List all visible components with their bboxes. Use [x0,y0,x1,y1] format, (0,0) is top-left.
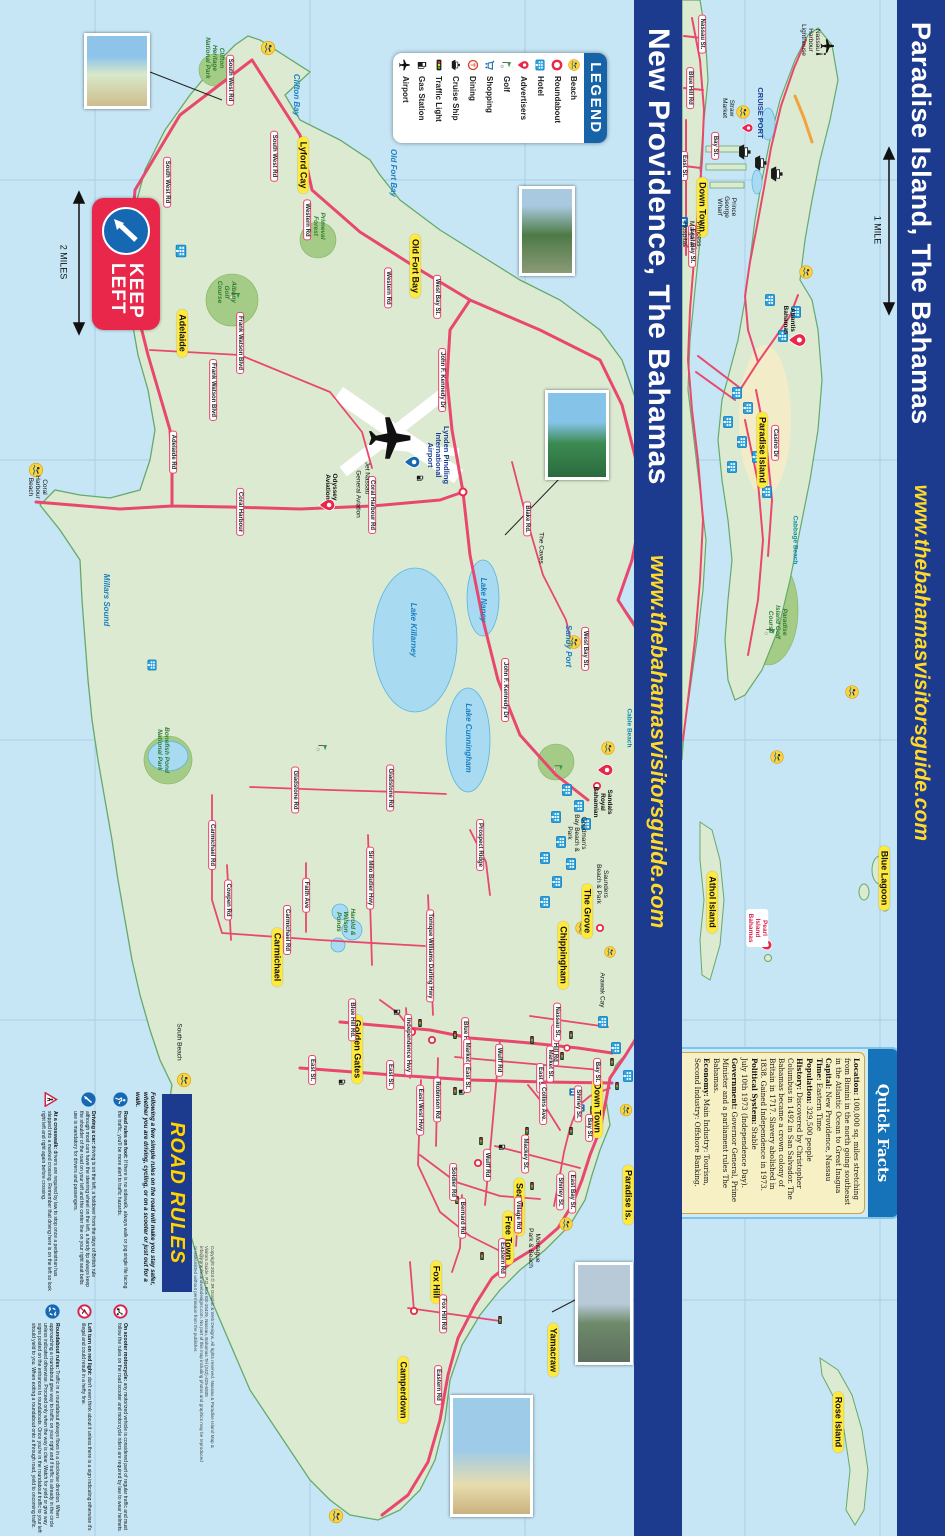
road-label: Sir Milo Butler Hwy [366,847,374,910]
roundabout2-icon [45,1304,60,1319]
quick-fact-text: Stable [750,1127,759,1150]
quick-fact: Time: Eastern Time [814,1058,823,1208]
road-label: John F. Kennedy Dr [501,658,509,722]
road-label: Shirley St. [574,1085,582,1122]
legend-item-label: Airport [401,76,410,103]
road-label: Western Rd [303,199,311,240]
hotel-icon [736,436,749,449]
beach-icon [261,41,276,56]
park-label: Harold & Wilson Ponds [335,902,355,942]
beach-icon [559,1217,573,1231]
quick-facts-panel: Quick Facts Location: 100,000 sq. miles … [660,1047,900,1219]
side-title-banner: Paradise Island, The Bahamas www.thebaha… [897,0,945,1536]
legend-item-gas-station: Gas Station [416,59,428,137]
poi-label: Straw Market [720,94,734,122]
road-label: Tonique Williams Darling Hwy [426,909,434,1002]
legend-item-roundabout: Roundabout [551,59,563,137]
cruise-icon [450,59,462,71]
road-label: Prospect Ridge [476,819,484,871]
legend-items: BeachRoundaboutHotelAdvertisersGolfShopp… [393,53,584,143]
copyright-notice: Copyright 2024 © JR Graphic & Web Design… [191,1246,215,1464]
quick-fact-text: July 10th 1973 (Independence Day). [740,1058,749,1188]
poi-label: Cable Beach [625,708,632,747]
poi-label: Atlantis Bahamas [781,304,795,336]
road-label: Frank Watson Blvd [236,312,244,374]
legend-item-label: Beach [570,76,579,100]
keep-left-sign: KEEP LEFT [92,198,160,330]
gas-icon [498,1143,507,1152]
hotel-icon [622,1070,635,1083]
road-label: Soldier Rd [449,1163,457,1201]
road-label: Blue Hill Rd [686,67,694,109]
beach-icon [736,105,750,119]
legend-item-traffic-light: Traffic Light [433,59,445,137]
roundabout-icon [596,924,605,933]
water-label: Lake Nancy [479,578,487,622]
water-label: Millars Sound [102,574,110,626]
beach-icon [568,59,580,71]
road-label: Gladstone Rd [386,764,394,811]
side-page-title: Paradise Island, The Bahamas [906,22,937,425]
road-rule: Road rules on foot: If there is no sidew… [113,1092,128,1292]
quick-fact-text: Eastern Time [815,1083,824,1131]
beach-icon [604,946,616,958]
place-label: Yamacraw [547,1323,558,1377]
poi-label: South Beach [175,1023,182,1060]
quick-fact-label: Location: [852,1058,861,1095]
pedestrian-icon [113,1092,128,1107]
poi-label: Pearl Island Bahamas [746,909,768,947]
traffic-icon [567,1127,576,1136]
park-label: Paradise Island Golf Course [767,599,787,645]
road-label: East Bay St. [568,1171,576,1214]
road-rule: At a crosswalk: drivers are required by … [40,1092,58,1292]
quick-fact-label: Political System: [750,1058,759,1124]
road-label: South West Rd [163,157,171,208]
road-rule-text: Roundabout rules: Traffic in a roundabou… [30,1323,60,1536]
quick-facts-body: Location: 100,000 sq. miles stretching f… [665,1052,865,1214]
place-label: Chippingham [557,921,568,989]
roundabout-icon [551,59,563,71]
road-label: Wulff Rd [495,1044,503,1077]
legend-item-label: Dining [468,76,477,101]
golf-icon [553,763,564,774]
traffic-icon [528,1182,537,1191]
road-label: Western Rd [384,267,392,308]
quick-fact-text: New Providence, Nassau [824,1091,833,1181]
road-rule-heading: Driving a car: [90,1111,96,1144]
photo-inset-beach [84,33,150,109]
traffic-icon [613,1082,622,1091]
beach-icon [845,685,859,699]
poi-label: Sandals Royal Bahamian [592,782,612,822]
road-label: Frank Watson Blvd [209,359,217,421]
legend-item-golf: Golf [500,59,512,137]
road-label: Village Rd [514,1197,522,1234]
road-label: East St. [463,1063,471,1093]
poi-label: Arawak Cay [598,972,605,1007]
road-label: Adelaide Rd [169,431,177,474]
legend-item-advertisers: Advertisers [517,59,529,137]
quick-fact: Political System: Stable [749,1058,758,1208]
beach-icon [329,1509,344,1524]
quick-fact-label: Time: [815,1058,824,1081]
poi-label: Coral Harbour Beach [27,469,47,505]
road-label: John F. Kennedy Dr [438,348,446,412]
road-label: Eastern Rd [434,1365,442,1405]
poi-label: The Caves [537,532,544,563]
legend-item-label: Traffic Light [434,76,443,122]
hotel-icon [534,59,546,71]
advertiser-icon [741,122,753,134]
quick-fact: Location: 100,000 sq. miles stretching f… [833,1058,860,1208]
road-label: East St. [308,1055,316,1085]
scale-label: 2 MILES [58,245,67,280]
place-label: Rose Island [832,1392,843,1453]
road-rule: On scooter motorcycle: any motorized veh… [113,1304,128,1532]
quick-fact-label: History: [795,1058,804,1090]
legend-item-label: Advertisers [519,76,528,120]
road-label: Carmichael Rd [283,905,291,955]
keep-left-line1: KEEP [126,263,144,319]
quick-fact: July 10th 1973 (Independence Day). [739,1058,748,1208]
roundabout-icon [474,1159,483,1168]
road-label: Market St. [546,1046,554,1083]
road-label: Cowpen Rd [224,880,232,921]
keep-left-line2: LEFT [108,263,126,319]
place-label: Lyford Cay [297,137,308,194]
poi-label: Prince George Wharf [716,189,736,225]
hotel-icon [764,294,777,307]
noleft-icon [77,1304,92,1319]
poi-label: Saunders Beach & Park [594,864,608,904]
airport-icon [369,415,415,461]
road-rule-text: At a crosswalk: drivers are required by … [40,1111,58,1292]
gas-icon [416,474,425,483]
main-title-banner: New Providence, The Bahamas www.thebaham… [634,0,682,1536]
hotel-icon [561,784,574,797]
keep-left-text: KEEP LEFT [108,263,144,319]
place-label: Camperdown [397,1356,408,1423]
road-label: Bay St. [585,1114,593,1142]
road-label: Robinson Rd [433,1077,441,1122]
road-label: West Bay St. [433,275,441,319]
hotel-icon [539,896,552,909]
photo-inset-fort [575,1262,633,1365]
scale-label: 1 MILE [872,216,881,245]
traffic-icon [567,1031,576,1040]
cruise-icon [769,166,786,183]
place-label: Blue Lagoon [878,846,889,911]
beach-icon [177,1073,192,1088]
advertiser-icon [597,762,613,778]
hotel-icon [610,1042,623,1055]
place-label: Paradise Is. [622,1165,633,1225]
road-label: Faith Ave [302,878,310,913]
side-website-url: www.thebahamasvisitorsguide.com [909,485,933,841]
roundabout-icon [410,1307,419,1316]
road-rules-panel: ROAD RULES Following a few simple rules … [28,1092,192,1536]
road-label: Shirley St. [556,1173,564,1210]
cruise-icon [753,155,770,172]
hotel-icon [539,852,552,865]
quick-fact-label: Population: [805,1058,814,1104]
place-label: The Grove [581,884,592,939]
road-label: Nassau St. [553,1003,561,1042]
poi-label: Nassau Harbour Lighthouse [800,20,820,60]
road-label: Bay St. [711,132,719,160]
legend-item-cruise-ship: Cruise Ship [450,59,462,137]
hotel-icon [731,387,744,400]
road-label: Gladstone Rd [291,766,299,813]
legend-item-label: Gas Station [417,76,426,120]
crosswalk-icon [43,1092,58,1107]
hotel-icon [742,402,755,415]
road-label: Coral Harbour [236,488,244,536]
beach-icon [620,1104,633,1117]
traffic-icon [416,1019,425,1028]
road-label: Collins Ave. [539,1083,547,1125]
hotel-icon [726,461,739,474]
road-label: East St. [386,1060,394,1090]
quick-fact-text: 329,500 people [805,1106,814,1162]
road-rule-heading: Roundabout rules: [54,1323,60,1369]
road-label: Casino Dr [771,425,779,461]
road-label: East West Hwy [416,1085,424,1136]
quick-fact-label: Economy: [702,1058,711,1097]
airport-icon [399,59,411,71]
road-label: South West Rd [270,131,278,182]
map-page: { "titles": { "main_title": "New Provide… [0,0,945,1536]
dining-icon [467,59,479,71]
place-label: Paradise Island [756,412,767,488]
road-label: Bay St. [593,1058,601,1086]
photo-inset-coast [545,390,609,480]
poi-label: Lynden Pindling International Airport [426,420,450,490]
water-label: Lake Killarney [409,603,417,657]
quick-fact: Government: Governor General, Prime Mini… [711,1058,738,1208]
advertiser-icon [517,59,529,71]
legend-item-airport: Airport [399,59,411,137]
legend-item-dining: Dining [467,59,479,137]
quick-facts-title: Quick Facts [868,1049,898,1217]
road-rule-text: Driving a car: driving is on the left, a… [72,1111,96,1292]
traffic-icon [477,1137,486,1146]
road-label: Wulff Rd [483,1149,491,1182]
road-label: Independence Hwy [404,1014,412,1076]
road-rule-heading: Left turn on red light: [86,1323,92,1375]
poi-label: Princess Margaret Hospital [681,214,701,254]
hotel-icon [146,659,158,671]
place-label: Carmichael [271,928,282,987]
legend-item-shopping: Shopping [484,59,496,137]
poi-label: Goodman's Bay Beach & Park [566,810,586,856]
beach-icon [601,741,615,755]
traffic-icon [433,59,445,71]
quick-fact: History: Discovered by Christopher Colum… [759,1058,803,1208]
photo-inset-garden [519,186,575,276]
park-label: Bonefish Pond National Park [155,725,169,775]
road-label: Eastern Rd [498,1238,506,1278]
road-rules-intro: Following a few simple rules on the road… [134,1092,156,1290]
road-label: Blake Rd. [523,501,531,536]
legend-item-label: Shopping [485,76,494,113]
page-title: New Providence, The Bahamas [641,28,675,485]
scooter-icon [113,1304,128,1319]
beach-icon [799,265,813,279]
traffic-icon [528,1036,537,1045]
road-rule-heading: On scooter motorcycle: [122,1323,128,1381]
keep-left-arrow-icon [102,207,150,255]
road-rule: Driving a car: driving is on the left, a… [72,1092,96,1292]
road-rule-heading: At a crosswalk: [52,1111,58,1149]
park-label: Primeval Forest [311,209,325,243]
photo-inset-shore [450,1395,533,1517]
road-label: Bernard Rd [458,1198,466,1239]
legend-item-label: Cruise Ship [451,76,460,120]
legend-item-label: Golf [502,76,511,92]
hotel-icon [551,876,564,889]
road-rule-text: On scooter motorcycle: any motorized veh… [113,1323,128,1532]
road-label: Fox Hill Rd [439,1294,447,1333]
gas-icon [416,59,428,71]
park-label: Clifton Heritage National Park [204,35,224,81]
traffic-icon [496,1316,505,1325]
website-url: www.thebahamasvisitorsguide.com [645,555,671,928]
roundabout-icon [428,1036,437,1045]
hotel-icon [550,811,563,824]
road-rule-text: Left turn on red light: don't even think… [77,1323,92,1532]
hotel-icon [722,416,735,429]
quick-fact: Economy: Main Industry: Tourism, Second … [693,1058,711,1208]
keepleft-icon [81,1092,96,1107]
road-label: Nassau St. [698,15,706,54]
place-label: Athol Island [706,871,717,933]
road-label: Carmichael Rd [208,820,216,870]
quick-fact: Capital: New Providence, Nassau [824,1058,833,1208]
gas-icon [338,1078,347,1087]
beach-icon [770,750,784,764]
place-label: Old Fort Bay [409,234,420,298]
road-rule-heading: Road rules on foot: [122,1111,128,1159]
poi-label: Montague Park & Beach [526,1228,540,1268]
legend-item-label: Roundabout [553,76,562,123]
poi-label: Odyssey Aviation [323,470,337,504]
road-label: South West Rd [226,55,234,106]
quick-fact-label: Capital: [824,1058,833,1089]
golf-icon [500,59,512,71]
poi-label: General Aviation [354,470,361,518]
road-rule: Left turn on red light: don't even think… [77,1304,92,1532]
poi-label: Jet Nassau [363,462,370,495]
quick-fact: Population: 329,500 people [804,1058,813,1208]
poi-label: Cabbage Beach [791,516,798,565]
quick-fact-label: Government: [730,1058,739,1109]
water-label: Old Fort Bay [389,149,397,197]
hotel-icon [597,1016,610,1029]
traffic-icon [608,1058,617,1067]
road-label: Mackey St. [521,1134,529,1173]
traffic-icon [451,1031,460,1040]
legend-item-hotel: Hotel [534,59,546,137]
legend-item-beach: Beach [568,59,580,137]
legend-title: LEGEND [584,53,607,143]
poi-label: CRUISE PORT [756,87,764,138]
shopping-icon [484,59,496,71]
park-label: Albany Golf Course [216,274,236,310]
water-label: Clifton Bay [292,74,300,116]
legend-box: LEGEND BeachRoundaboutHotelAdvertisersGo… [393,53,607,143]
roundabout-icon [458,487,468,497]
cruise-icon [737,144,754,161]
road-rules-title: ROAD RULES [162,1094,192,1292]
hotel-icon [565,858,578,871]
legend-item-label: Hotel [536,76,545,96]
golf-icon [316,742,328,754]
water-label: Sandy Port [564,625,572,667]
road-rule-text: Road rules on foot: If there is no sidew… [113,1111,128,1292]
place-label: Adelaide [176,309,187,357]
road-rule: Roundabout rules: Traffic in a roundabou… [30,1304,60,1536]
traffic-icon [478,1252,487,1261]
gas-icon [393,1008,402,1017]
hotel-icon [174,244,188,258]
road-label: West Bay St. [581,627,589,671]
water-label: Lake Cunningham [464,703,472,772]
road-label: Blue Hill Rd. [348,998,356,1041]
